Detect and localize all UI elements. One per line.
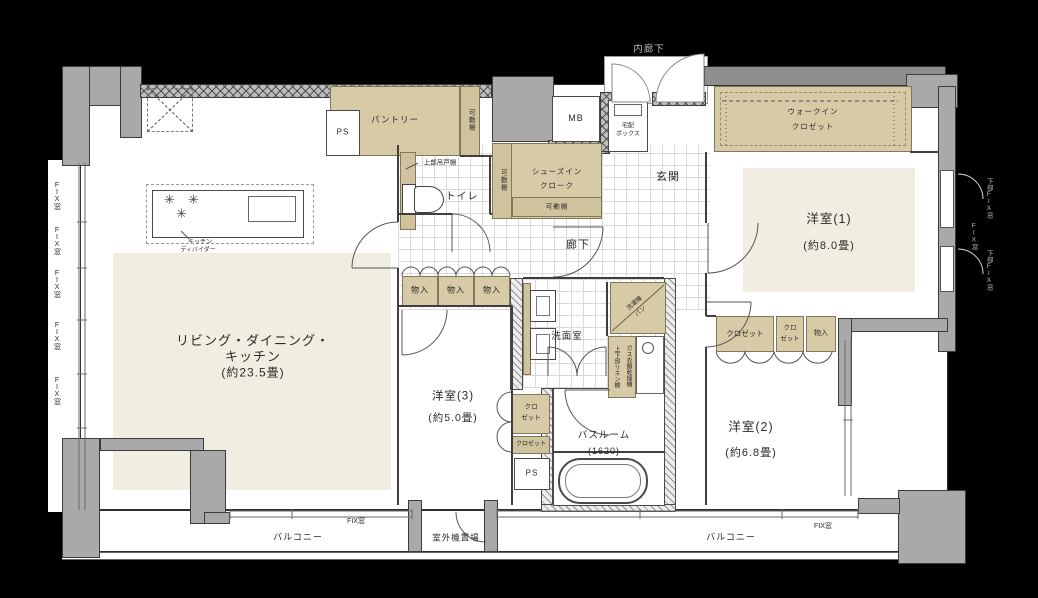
sic-label-line2: クローク <box>540 182 574 190</box>
pantry-shelf-label: 可動棚 <box>467 109 474 132</box>
bedroom3-size-label: (約5.0畳) <box>428 413 478 425</box>
sic-shelf-bottom-label: 可動棚 <box>546 203 569 210</box>
ldk-label-line2: キッチン <box>225 350 281 364</box>
upper-cabinet-label: 上部吊戸棚 <box>424 159 457 166</box>
floor-plan-canvas: ✳ ✳ ✳ <box>0 0 1038 598</box>
plan-linework <box>0 0 1038 598</box>
bedroom3-label: 洋室(3) <box>432 391 474 404</box>
gas-dryer-label: ガス衣類乾燥機 <box>625 345 631 387</box>
wic-label-line2: クロゼット <box>792 123 835 131</box>
washroom-label: 洗面室 <box>551 332 583 342</box>
sic-label-line1: シューズイン <box>532 168 583 176</box>
bedroom3-closet-label-line1: クロ <box>525 403 538 410</box>
bedroom1-size-label: (約8.0畳) <box>803 240 855 252</box>
delivery-box-label-line2: ボックス <box>616 132 640 139</box>
fix-window-label-left-4: FIX窓 <box>54 322 61 350</box>
hall-storage-label-3: 物入 <box>483 287 501 296</box>
kitchen-divider-label-line1: キッチン <box>188 240 212 247</box>
ps-bath-label: PS <box>526 470 539 479</box>
fix-window-label-right: FIX窓 <box>970 222 977 250</box>
delivery-box-label-line1: 宅配 <box>622 124 634 131</box>
outdoor-unit-label: 室外機置場 <box>432 533 480 542</box>
hall-storage-label-1: 物入 <box>411 287 429 296</box>
sic-shelf-left-label: 可動棚 <box>499 169 506 192</box>
toilet-label: トイレ <box>446 192 479 203</box>
bathroom-size-label: (1620) <box>588 447 620 457</box>
bedroom2-closet-b-label-line1: クロ <box>784 324 797 331</box>
meter-box-label: MB <box>568 114 584 124</box>
inner-corridor-label: 内廊下 <box>633 45 665 55</box>
fix-window-label-left-3: FIX窓 <box>54 270 61 298</box>
linen-shelf-label: 上下部リネン棚 <box>613 346 619 388</box>
ldk-label-line1: リビング・ダイニング・ <box>176 334 330 348</box>
ldk-size-label: (約23.5畳) <box>221 366 284 379</box>
bedroom2-closet-b-label-line2: ゼット <box>780 335 800 342</box>
fix-window-label-balcony-left: FIX窓 <box>347 518 365 526</box>
genkan-label: 玄関 <box>656 171 680 183</box>
ps-pantry-label: PS <box>337 129 350 138</box>
hall-storage-label-2: 物入 <box>447 287 465 296</box>
bedroom1-label: 洋室(1) <box>806 213 851 227</box>
bedroom3-closet-strip-label: クロゼット <box>516 442 546 449</box>
fix-window-label-left-2: FIX窓 <box>54 227 61 255</box>
fix-window-label-left-1: FIX窓 <box>54 182 61 210</box>
wic-label-line1: ウォークイン <box>788 108 839 116</box>
bedroom2-size-label: (約6.8畳) <box>725 447 777 459</box>
pantry-label: パントリー <box>371 115 419 124</box>
lower-fix-window-label-right-1: 下部FIX窓 <box>985 178 992 219</box>
kitchen-divider-label-line2: ディバイダー <box>180 248 215 255</box>
balcony-left-label: バルコニー <box>273 533 323 543</box>
fix-window-label-balcony-right: FIX窓 <box>814 523 832 531</box>
bedroom2-storage-label: 物入 <box>814 330 828 338</box>
balcony-right-label: バルコニー <box>706 533 756 543</box>
fix-window-label-left-5: FIX窓 <box>54 377 61 405</box>
lower-fix-window-label-right-2: 下部FIX窓 <box>985 250 992 291</box>
bedroom3-closet-label-line2: ゼット <box>521 414 541 421</box>
bedroom2-label: 洋室(2) <box>728 421 773 435</box>
bedroom2-closet-a-label: クロゼット <box>726 330 764 338</box>
bathroom-label: バスルーム <box>578 431 630 441</box>
hallway-label: 廊下 <box>566 239 590 251</box>
